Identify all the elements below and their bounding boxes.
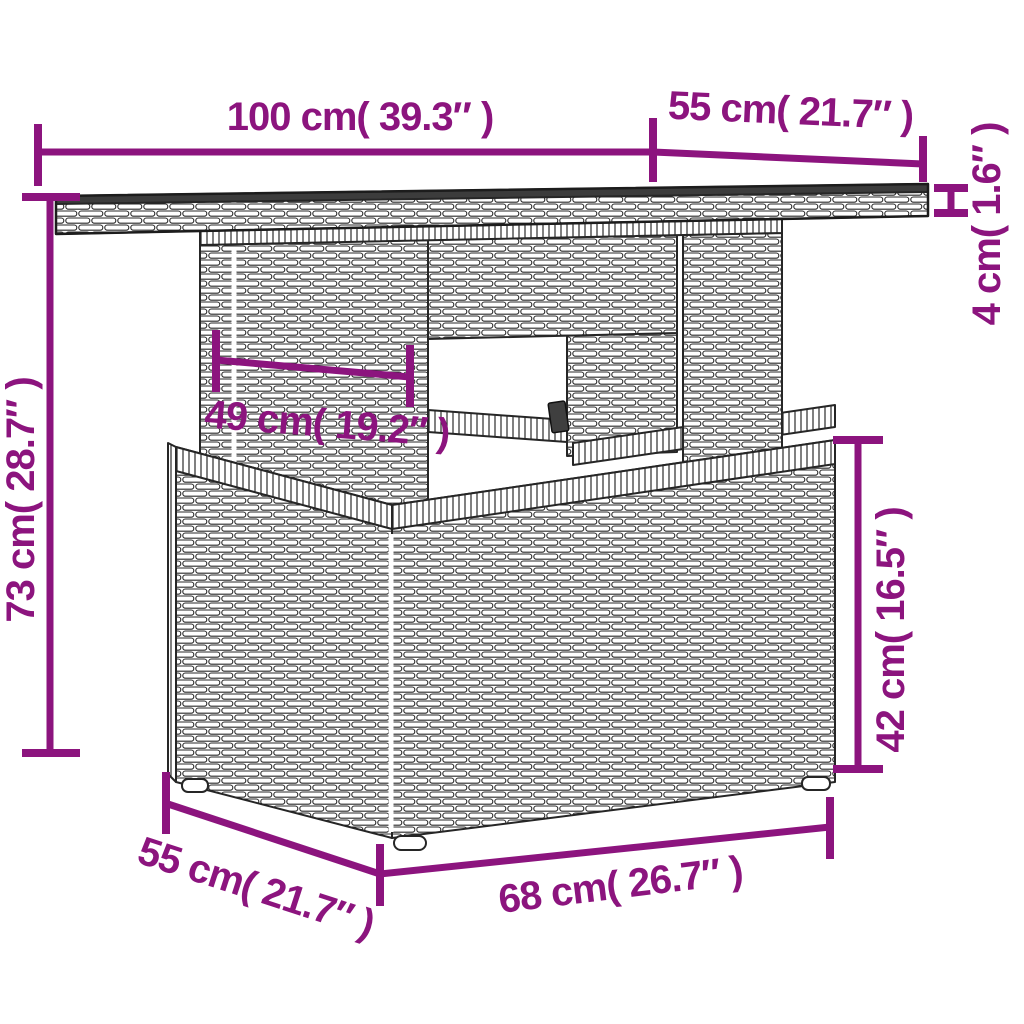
dim-base-height-label: 42 cm( 16.5″ )	[869, 507, 913, 752]
mount-bracket	[548, 401, 569, 433]
dim-overall-height-label: 73 cm( 28.7″ )	[0, 377, 43, 622]
dim-top-depth-label: 55 cm( 21.7″ )	[667, 84, 914, 139]
dimension-diagram-svg: 100 cm( 39.3″ ) 55 cm( 21.7″ ) 4 cm( 1.6…	[0, 0, 1024, 1024]
dim-top-thickness: 4 cm( 1.6″ )	[934, 123, 1009, 326]
base-left-edge-roll	[168, 443, 176, 782]
dim-top-width-label: 100 cm( 39.3″ )	[227, 95, 494, 139]
dim-base-height: 42 cm( 16.5″ )	[833, 440, 913, 769]
table-illustration	[56, 184, 928, 850]
foot-right	[802, 777, 830, 790]
dim-top-thickness-label: 4 cm( 1.6″ )	[965, 123, 1009, 326]
dim-top-depth: 55 cm( 21.7″ )	[653, 84, 923, 182]
foot-left	[182, 779, 208, 792]
dim-overall-height: 73 cm( 28.7″ )	[0, 197, 80, 753]
dim-top-width: 100 cm( 39.3″ )	[38, 95, 653, 186]
foot-front	[394, 836, 426, 850]
apron	[428, 235, 677, 339]
right-pedestal-front-face	[683, 233, 782, 472]
dim-base-depth-label: 55 cm( 21.7″ )	[133, 829, 380, 947]
diagram-canvas: 100 cm( 39.3″ ) 55 cm( 21.7″ ) 4 cm( 1.6…	[0, 0, 1024, 1024]
